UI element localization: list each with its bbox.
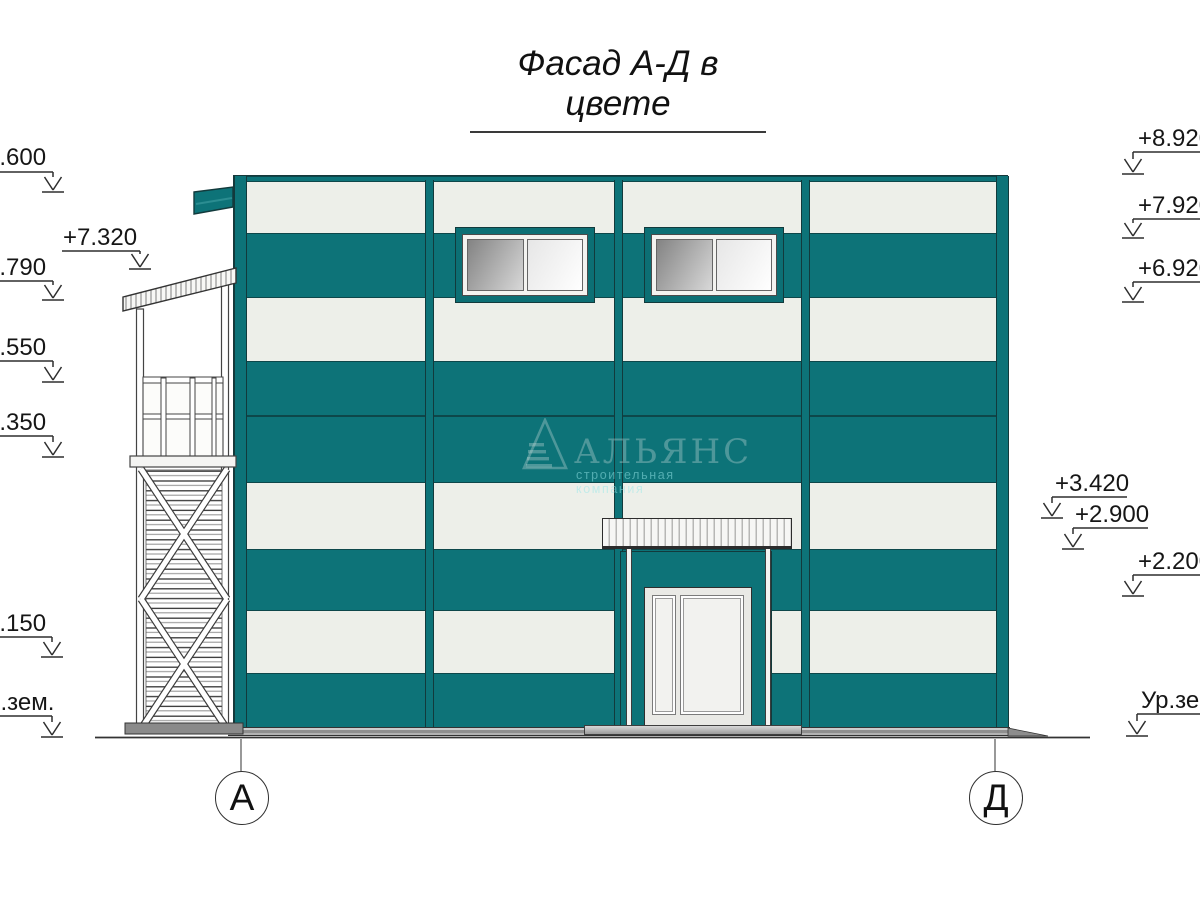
- elevation-mark: +7.920: [1138, 192, 1200, 220]
- canopy-post-left: [626, 549, 632, 727]
- elevation-leaders-right: [1041, 152, 1200, 736]
- elevation-mark: +8.920: [1138, 125, 1200, 153]
- elevation-mark: +7.320: [63, 224, 137, 252]
- axis-label: Д: [983, 777, 1008, 819]
- window-right: [644, 227, 784, 303]
- stair-balustrade: [143, 377, 223, 458]
- elevation-mark: +4.350: [0, 409, 46, 437]
- window-frame: [651, 234, 777, 296]
- stair-landing: [130, 456, 236, 467]
- canopy-post-right: [765, 549, 771, 727]
- axis-label: А: [230, 777, 255, 819]
- door-leaf: [680, 595, 744, 715]
- window-glass-pane: [656, 239, 713, 291]
- elevation-mark: +2.900: [1075, 501, 1149, 529]
- axis-connector-lines: [241, 739, 995, 771]
- elevation-mark: +6.790: [0, 254, 46, 282]
- stair-base-plate: [125, 723, 243, 734]
- drawing-title: Фасад А-Д в цвете: [470, 44, 766, 133]
- stair-post-left: [137, 309, 144, 727]
- stair-cross-bracing: [141, 469, 227, 729]
- facade-drawing: Фасад А-Д в цвете АЛЬЯНС строительная ко…: [0, 0, 1200, 900]
- elevation-mark: +2.200: [1138, 548, 1200, 576]
- axis-bubble-d: Д: [969, 771, 1023, 825]
- elevation-mark: +5.550: [0, 334, 46, 362]
- base-right-wedge: [1008, 728, 1048, 736]
- window-left: [455, 227, 595, 303]
- facade-corner-column-right: [996, 176, 1009, 730]
- facade-corner-column-left: [234, 176, 247, 730]
- axis-bubble-a: А: [215, 771, 269, 825]
- elevation-mark: +8.600: [0, 144, 46, 172]
- roof-drain-pipe: [194, 187, 233, 214]
- window-glass-pane: [527, 239, 583, 291]
- facade-mullion: [801, 180, 810, 729]
- ground-level-mark: Ур.зем.: [0, 689, 54, 717]
- stair-post-right: [222, 284, 229, 727]
- window-glass-pane: [467, 239, 524, 291]
- window-frame: [462, 234, 588, 296]
- window-glass-pane: [716, 239, 772, 291]
- elevation-mark: +1.150: [0, 610, 46, 638]
- door-sidelight: [652, 595, 676, 715]
- entrance-threshold: [584, 725, 802, 735]
- elevation-mark: +6.920: [1138, 255, 1200, 283]
- entrance-door: [644, 587, 752, 728]
- stair-roof: [123, 268, 236, 311]
- stair-tower: [123, 268, 243, 734]
- entrance-canopy: [602, 518, 792, 549]
- facade-mullion: [425, 180, 434, 729]
- stair-treads: [146, 470, 222, 724]
- elevation-mark: +3.420: [1055, 470, 1129, 498]
- ground-level-mark: Ур.зем.: [1141, 687, 1200, 715]
